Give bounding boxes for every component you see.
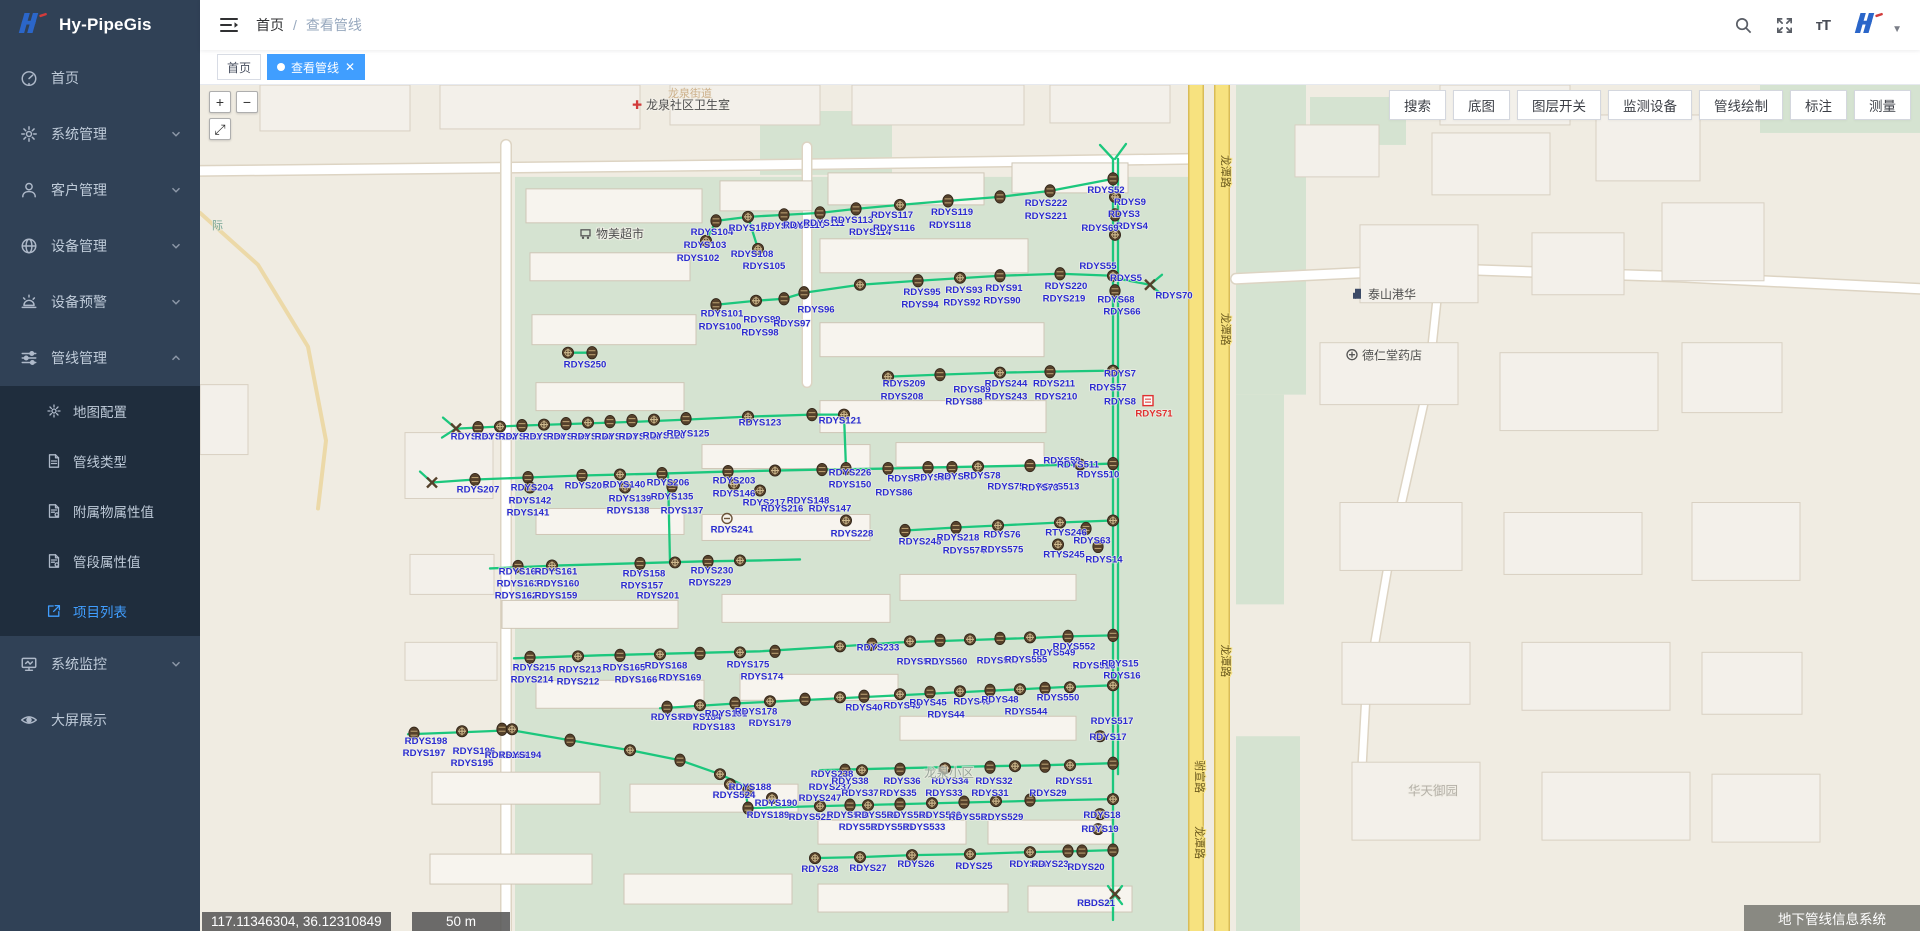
pipe-node-label: RDYS230 — [691, 565, 734, 576]
pipe-node-label: RDYS29 — [1029, 788, 1066, 799]
pipe-node-label: RDYS174 — [741, 671, 784, 682]
pipe-node — [1107, 680, 1118, 691]
pipe-node-label: RDYS222 — [1025, 198, 1068, 209]
logo-mark-icon — [16, 10, 50, 41]
pipe-node — [985, 761, 995, 773]
pipe-node-label: RDYS159 — [535, 590, 578, 601]
sidebar-item-label: 系统管理 — [51, 124, 170, 144]
sidebar-item-管线管理[interactable]: 管线管理 — [0, 330, 200, 386]
pipe-node — [1054, 517, 1065, 528]
pipe-node-label: RDYS139 — [609, 494, 652, 505]
alarm-icon — [20, 293, 38, 311]
pipe-node-label: RDYS55 — [1079, 261, 1117, 272]
pipe-node-label: RDYS66 — [1103, 307, 1140, 318]
pipe-node — [561, 417, 571, 429]
pipe-node-label: RDYS247 — [799, 793, 842, 804]
pipe-node — [817, 463, 827, 475]
pipe-node-label: RDYS198 — [405, 736, 448, 747]
pipe-node-label: RDYS183 — [693, 722, 736, 733]
pipe-node-label: RDYS233 — [857, 642, 900, 653]
pipe-node-label: RDYS86 — [875, 488, 912, 499]
pipe-node-label: RDYS203 — [713, 476, 756, 487]
road-label: 龙潭路 — [1219, 313, 1232, 346]
sidebar-item-管段属性值[interactable]: 管段属性值 — [0, 536, 200, 586]
pipe-node — [1040, 760, 1050, 772]
pipe-node-label: RDYS113 — [831, 215, 873, 226]
pipe-node — [894, 199, 905, 210]
pipe-node-label: RDYS228 — [831, 528, 874, 539]
doc-icon — [46, 453, 62, 469]
pipe-node-label: RDYS71 — [1135, 409, 1173, 420]
pipe-node-label: RDYS204 — [511, 483, 554, 494]
pipe-node-label: RDYS510 — [1077, 470, 1120, 481]
sidebar-item-label: 系统监控 — [51, 654, 170, 674]
pipe-node-label: RDYS108 — [731, 249, 774, 260]
pipe-node — [964, 634, 975, 645]
pipe-node-label: RDYS215 — [513, 662, 556, 673]
sidebar-item-label: 项目列表 — [73, 601, 182, 621]
tab-label: 查看管线 — [291, 59, 339, 76]
pipe-node-label: RDYS209 — [883, 379, 926, 390]
pipe-node-label: RDYS68 — [1097, 295, 1135, 306]
tab-查看管线[interactable]: 查看管线✕ — [267, 54, 365, 80]
map-tool-搜索[interactable]: 搜索 — [1389, 90, 1446, 120]
pipe-node-label: RDYS75 — [987, 482, 1025, 493]
topbar: 首页 / 查看管线 тT ▼ — [200, 0, 1920, 50]
pipe-node — [779, 293, 789, 305]
pipe-node-label: RDYS118 — [929, 220, 972, 231]
external-link-icon — [46, 603, 62, 619]
pipe-node-label: RDYS38 — [831, 776, 869, 787]
chevron-down-icon — [170, 240, 182, 252]
pipe-node-label: RDYS550 — [1037, 692, 1080, 703]
pipe-node-label: RDYS166 — [615, 674, 658, 685]
sidebar-item-项目列表[interactable]: 项目列表 — [0, 586, 200, 636]
pipe-node-label: RDYS52 — [1087, 185, 1124, 196]
sidebar-item-客户管理[interactable]: 客户管理 — [0, 162, 200, 218]
pipe-node — [1107, 794, 1118, 805]
chevron-down-icon — [170, 184, 182, 196]
pipe-node — [750, 295, 761, 306]
pipe-node-label: RDYS161 — [535, 566, 578, 577]
pipe-node-label: RDYS15 — [1101, 658, 1139, 669]
pipe-node-label: RDYS150 — [829, 480, 872, 491]
pipe-node-label: RDYS218 — [937, 532, 980, 543]
pipe-node-label: RDYS103 — [684, 240, 727, 251]
pipe-node-label: RDYS96 — [797, 305, 834, 316]
pipe-node — [734, 647, 745, 658]
road-label: 龙潭路 — [1219, 155, 1232, 188]
map-tool-底图[interactable]: 底图 — [1453, 90, 1510, 120]
pipe-node-label: RDYS69 — [1081, 223, 1118, 234]
pipe-node — [1045, 365, 1055, 377]
area-label: 华天御园 — [1408, 783, 1458, 798]
pipe-node-label: RDYS211 — [1033, 379, 1076, 390]
pipe-node-label: RDYS175 — [727, 659, 770, 670]
doc-gear-icon — [46, 503, 62, 519]
pipe-node-label: RDYS522 — [789, 812, 832, 823]
map-tool-测量[interactable]: 测量 — [1854, 90, 1911, 120]
pipe-node-label: RDYS142 — [509, 496, 552, 507]
svg-text:物美超市: 物美超市 — [596, 226, 644, 241]
pipe-node-label: RDYS44 — [927, 709, 965, 720]
sidebar-item-系统管理[interactable]: 系统管理 — [0, 106, 200, 162]
sidebar-item-设备管理[interactable]: 设备管理 — [0, 218, 200, 274]
pipe-node-label: RDYS160 — [537, 578, 580, 589]
pipe-node-label: RDYS76 — [983, 529, 1020, 540]
pipe-node-label: RDYS188 — [729, 782, 772, 793]
pipe-node-label: RDYS117 — [871, 210, 913, 221]
svg-text:✚: ✚ — [632, 98, 642, 112]
pipe-node-label: RDYS40 — [845, 702, 882, 713]
pipe-node-label: RDYS125 — [667, 429, 710, 440]
pipe-node-label: RDYS529 — [981, 812, 1024, 823]
pipe-node — [695, 647, 705, 659]
pipe-node-label: RDYS33 — [925, 788, 962, 799]
sidebar: Hy-PipeGis 首页系统管理客户管理设备管理设备预警管线管理地图配置管线类… — [0, 0, 200, 931]
pipe-node-label: RDYS32 — [975, 776, 1012, 787]
pipe-node-label: RDYS168 — [645, 660, 688, 671]
pipe-node-label: RDYS205 — [565, 481, 608, 492]
pipe-node — [456, 726, 467, 737]
pipe-node-label: RDYS248 — [899, 536, 942, 547]
pipe-node-label: RDYS197 — [403, 748, 446, 759]
gear-icon — [20, 125, 38, 143]
pipe-node — [627, 414, 637, 426]
pipe-node-label: RDYS8 — [1104, 397, 1137, 408]
avatar-logo-icon — [1852, 10, 1886, 41]
pipe-node-label: RDYS221 — [1025, 211, 1068, 222]
sidebar-item-label: 管线管理 — [51, 348, 170, 368]
pipe-node — [834, 641, 845, 652]
search-icon[interactable] — [1734, 16, 1753, 35]
pipe-node-label: RDYS31 — [971, 788, 1009, 799]
pipe-node-label: RDYS226 — [829, 468, 872, 479]
pipe-node — [1108, 629, 1118, 641]
pipe-node — [1024, 846, 1035, 857]
sidebar-item-地图配置[interactable]: 地图配置 — [0, 386, 200, 436]
pipe-node-label: RDYS229 — [689, 577, 732, 588]
pipe-node — [994, 367, 1005, 378]
svg-text:泰山港华: 泰山港华 — [1368, 288, 1416, 302]
pipe-node — [711, 215, 721, 227]
pipe-node-label: RDYS88 — [945, 397, 983, 408]
pipe-node — [1024, 632, 1035, 643]
pipe-node-label: RDYS102 — [677, 253, 720, 264]
pipe-node-label: RDYS123 — [739, 418, 782, 429]
expand-button[interactable]: ⤢ — [209, 118, 231, 140]
area-label: 际 — [212, 219, 223, 232]
tab-bar: 首页✕查看管线✕ — [200, 50, 1920, 85]
tab-label: 首页 — [227, 59, 251, 76]
sidebar-item-设备预警[interactable]: 设备预警 — [0, 274, 200, 330]
pipe-node — [995, 270, 1005, 282]
pipe-node — [943, 195, 953, 207]
pipe-node — [854, 851, 865, 862]
pipe-node-label: RDYS104 — [691, 227, 734, 238]
pipe-node-label: RDYS517 — [1091, 716, 1134, 727]
sidebar-item-管线类型[interactable]: 管线类型 — [0, 436, 200, 486]
pipe-node-label: RDYS241 — [711, 524, 754, 535]
pipe-node — [1108, 457, 1118, 469]
breadcrumb-separator: / — [293, 17, 297, 33]
fullscreen-icon[interactable] — [1775, 16, 1794, 35]
main-column: 首页 / 查看管线 тT ▼ 首页✕查看管线✕ RDYS104RDYS107RD… — [200, 0, 1920, 931]
map-tool-监测设备[interactable]: 监测设备 — [1608, 90, 1692, 120]
pipe-node-label: RDYS116 — [873, 223, 915, 234]
sidebar-item-label: 附属物属性值 — [73, 501, 182, 521]
pipe-node-label: RDYS201 — [637, 590, 680, 601]
pipe-node — [742, 211, 753, 222]
pipe-node-label: RDYS36 — [883, 776, 920, 787]
pipe-node — [562, 347, 573, 358]
pipe-node-label: RDYS63 — [1073, 535, 1110, 546]
pipe-node-label: RDYS190 — [755, 798, 798, 809]
map-tool-管线绘制[interactable]: 管线绘制 — [1699, 90, 1783, 120]
pipe-node — [1014, 684, 1025, 695]
pipe-node-label: RDYS141 — [507, 507, 550, 518]
pipe-node-label: RDYS163 — [497, 578, 540, 589]
pipe-node-label: RDYS95 — [903, 287, 941, 298]
zoom-in-button[interactable]: + — [209, 91, 231, 113]
pipe-node — [587, 346, 597, 358]
pipe-node — [935, 368, 945, 380]
pipe-node-label: RDYS194 — [499, 750, 542, 761]
sidebar-item-label: 管线类型 — [73, 451, 182, 471]
pipe-node-label: RDYS7 — [1104, 369, 1136, 380]
gear-sm-icon — [46, 403, 62, 419]
pipe-node — [1108, 757, 1118, 769]
pipe-node — [675, 754, 685, 766]
sidebar-item-label: 设备预警 — [51, 292, 170, 312]
pipe-node — [734, 555, 745, 566]
pipe-node-label: RDYS20 — [1067, 862, 1104, 873]
active-tab-dot — [277, 63, 285, 71]
pipe-node-label: RDYS533 — [903, 822, 946, 833]
pipe-node-label: RDYS93 — [945, 285, 982, 296]
pipe-node — [900, 524, 910, 536]
tab-首页[interactable]: 首页✕ — [217, 54, 261, 80]
pipe-node-label: RDYS219 — [1043, 294, 1086, 305]
pipe-node — [1009, 761, 1020, 772]
close-tab-icon[interactable]: ✕ — [345, 61, 355, 73]
breadcrumb-home[interactable]: 首页 — [256, 15, 284, 35]
pipe-node — [1143, 396, 1153, 406]
user-avatar[interactable]: ▼ — [1852, 10, 1902, 41]
pipe-node — [895, 763, 905, 775]
map-tool-图层开关[interactable]: 图层开关 — [1517, 90, 1601, 120]
pipe-node-label: RDYS105 — [743, 261, 786, 272]
pipe-node — [582, 417, 593, 428]
pipe-node — [754, 485, 765, 496]
pipe-node — [964, 848, 975, 859]
chevron-down-icon — [170, 296, 182, 308]
pipe-node — [1064, 760, 1075, 771]
pipe-node-label: RDYS35 — [879, 788, 917, 799]
pipe-node-label: RDYS207 — [457, 485, 500, 496]
pipe-node — [834, 692, 845, 703]
svg-text:德仁堂药店: 德仁堂药店 — [1362, 348, 1422, 363]
map-canvas[interactable]: RDYS104RDYS107RDYS103RDYS102RDYS108RDYS1… — [200, 85, 1920, 931]
pipe-node-label: RDYS244 — [985, 379, 1028, 390]
chevron-down-icon — [170, 128, 182, 140]
pipe-node-label: RDYS560 — [925, 656, 968, 667]
dashboard-icon — [20, 69, 38, 87]
map-area: RDYS104RDYS107RDYS103RDYS102RDYS108RDYS1… — [200, 85, 1920, 931]
pipe-node-label: RDYS214 — [511, 674, 554, 685]
pipe-node — [497, 723, 507, 735]
pipe-node — [565, 734, 575, 746]
pipe-node — [1052, 539, 1063, 550]
pipe-node — [895, 798, 905, 810]
pipe-node — [1045, 185, 1055, 197]
pipe-node — [722, 513, 732, 523]
pipe-node-label: RDYS137 — [661, 505, 704, 516]
sidebar-toggle-icon[interactable] — [218, 14, 240, 36]
sidebar-item-系统监控[interactable]: 系统监控 — [0, 636, 200, 692]
pipe-node-label: RDYS19 — [1081, 824, 1118, 835]
sidebar-item-label: 设备管理 — [51, 236, 170, 256]
pipe-node-label: RDYS208 — [881, 392, 924, 403]
pipe-node-label: RDYS27 — [849, 863, 886, 874]
chevron-down-icon — [170, 658, 182, 670]
pipe-node-label: RDYS4 — [1116, 221, 1149, 232]
pipe-node — [494, 421, 505, 432]
topbar-actions: тT ▼ — [1734, 10, 1902, 41]
pipe-node-label: RDYS5 — [1110, 273, 1143, 284]
pipe-node — [1107, 515, 1118, 526]
scale-bar: 50 m — [412, 912, 510, 931]
pipe-node-label: RDYS178 — [735, 706, 778, 717]
pipe-node — [1108, 844, 1118, 856]
pipe-node-label: RDYS206 — [647, 478, 690, 489]
pipe-node-label: RDYS213 — [559, 664, 602, 675]
pipe-node-label: RDYS17 — [1089, 732, 1126, 743]
pipe-node — [648, 414, 659, 425]
road-label: 龙潭路 — [1219, 644, 1232, 677]
pipe-node — [840, 515, 851, 526]
pipe-node — [1025, 459, 1035, 471]
app-logo: Hy-PipeGis — [0, 0, 200, 50]
pipe-node — [517, 419, 527, 431]
pipe-node-label: RDYS121 — [819, 416, 862, 427]
pipe-node-label: RDYS179 — [749, 718, 792, 729]
sidebar-item-label: 管段属性值 — [73, 551, 182, 571]
sidebar-item-附属物属性值[interactable]: 附属物属性值 — [0, 486, 200, 536]
pipe-node — [954, 272, 965, 283]
pipe-node-label: RDYS250 — [564, 360, 607, 371]
coordinates-readout: 117.11346304, 36.12310849 — [202, 912, 391, 931]
pipe-node-label: RDYS544 — [1005, 706, 1048, 717]
system-badge: 地下管线信息系统 — [1744, 905, 1920, 931]
pipe-node-label: RDYS147 — [809, 504, 852, 515]
pipe-node-label: RDYS169 — [659, 672, 702, 683]
pipe-node-label: RDYS165 — [603, 662, 646, 673]
pipe-node — [1063, 845, 1073, 857]
pipe-node — [935, 634, 945, 646]
pipe-node-label: RDYS73 — [1021, 483, 1058, 494]
pipe-node-label: RDYS243 — [985, 392, 1028, 403]
pipe-node-label: RDYS28 — [801, 864, 839, 875]
app-root: Hy-PipeGis 首页系统管理客户管理设备管理设备预警管线管理地图配置管线类… — [0, 0, 1920, 931]
pipe-node-label: RDYS552 — [1053, 641, 1096, 652]
pipe-node — [851, 203, 861, 215]
map-toolbar: 搜索底图图层开关监测设备管线绘制标注测量 — [1389, 90, 1911, 120]
pipe-node-label: RDYS212 — [557, 676, 600, 687]
sidebar-item-大屏展示[interactable]: 大屏展示 — [0, 692, 200, 748]
pipe-node-label: RDYS101 — [701, 309, 744, 320]
pipe-node-label: RBDS21 — [1077, 898, 1115, 909]
sidebar-item-label: 首页 — [51, 68, 182, 88]
zoom-out-button[interactable]: − — [236, 91, 258, 113]
pipe-node-label: RDYS9 — [1114, 197, 1146, 208]
pipe-node — [681, 412, 691, 424]
pipe-node-label: RDYS189 — [747, 810, 790, 821]
pipe-node-label: RDYS90 — [983, 296, 1020, 307]
user-icon — [20, 181, 38, 199]
pipe-node — [669, 557, 680, 568]
pipe-node-label: RDYS25 — [955, 861, 993, 872]
pipe-node — [894, 689, 905, 700]
pipe-node-label: RDYS18 — [1083, 810, 1121, 821]
pipe-node-label: RDYS23 — [1031, 859, 1068, 870]
pipe-node-label: RDYS92 — [943, 298, 980, 309]
pipe-node — [859, 690, 869, 702]
pipe-node — [807, 408, 817, 420]
breadcrumb: 首页 / 查看管线 — [256, 15, 362, 35]
pipe-node — [506, 724, 517, 735]
map-zoom-controls: + − ⤢ — [209, 91, 258, 140]
pipe-node — [1108, 173, 1118, 185]
eye-icon — [20, 711, 38, 729]
pipe-node-label: RDYS14 — [1085, 554, 1123, 565]
pipe-node — [615, 649, 625, 661]
breadcrumb-current: 查看管线 — [306, 15, 362, 35]
pipe-node-label: RDYS70 — [1155, 291, 1192, 302]
font-size-icon[interactable]: тT — [1816, 17, 1831, 34]
pipe-node-label: RDYS97 — [773, 319, 810, 330]
sidebar-item-label: 客户管理 — [51, 180, 170, 200]
doc-gear-icon — [46, 553, 62, 569]
pipe-node — [654, 649, 665, 660]
pipe-node — [995, 191, 1005, 203]
area-label: 龙泉小区 — [924, 765, 974, 780]
pipe-node-label: RDYS78 — [963, 471, 1001, 482]
pipe-node — [926, 798, 937, 809]
pipe-node — [572, 651, 583, 662]
pipe-node-label: RDYS220 — [1045, 281, 1088, 292]
pipe-node-label: RDYS16 — [1103, 670, 1140, 681]
sidebar-menu: 首页系统管理客户管理设备管理设备预警管线管理地图配置管线类型附属物属性值管段属性… — [0, 50, 200, 931]
pipe-node — [770, 645, 780, 657]
pipe-node — [714, 769, 725, 780]
pipe-node-label: RDYS91 — [985, 283, 1023, 294]
pipe-node-label: RDYS140 — [603, 480, 646, 491]
sidebar-item-label: 地图配置 — [73, 401, 182, 421]
pipe-node-label: RDYS162 — [495, 590, 538, 601]
map-tool-标注[interactable]: 标注 — [1790, 90, 1847, 120]
pipe-node-label: RDYS3 — [1108, 209, 1140, 220]
pipe-node-label: RDYS119 — [931, 207, 973, 218]
pipe-node — [1077, 845, 1087, 857]
pipe-node-label: RDYS138 — [607, 505, 650, 516]
pipe-node — [1055, 268, 1065, 280]
submenu-管线管理: 地图配置管线类型附属物属性值管段属性值项目列表 — [0, 386, 200, 636]
pipe-node-label: RDYS57 — [1089, 383, 1126, 394]
pipe-node — [538, 419, 549, 430]
pipe-node-label: RDYS94 — [901, 300, 939, 311]
sidebar-item-首页[interactable]: 首页 — [0, 50, 200, 106]
